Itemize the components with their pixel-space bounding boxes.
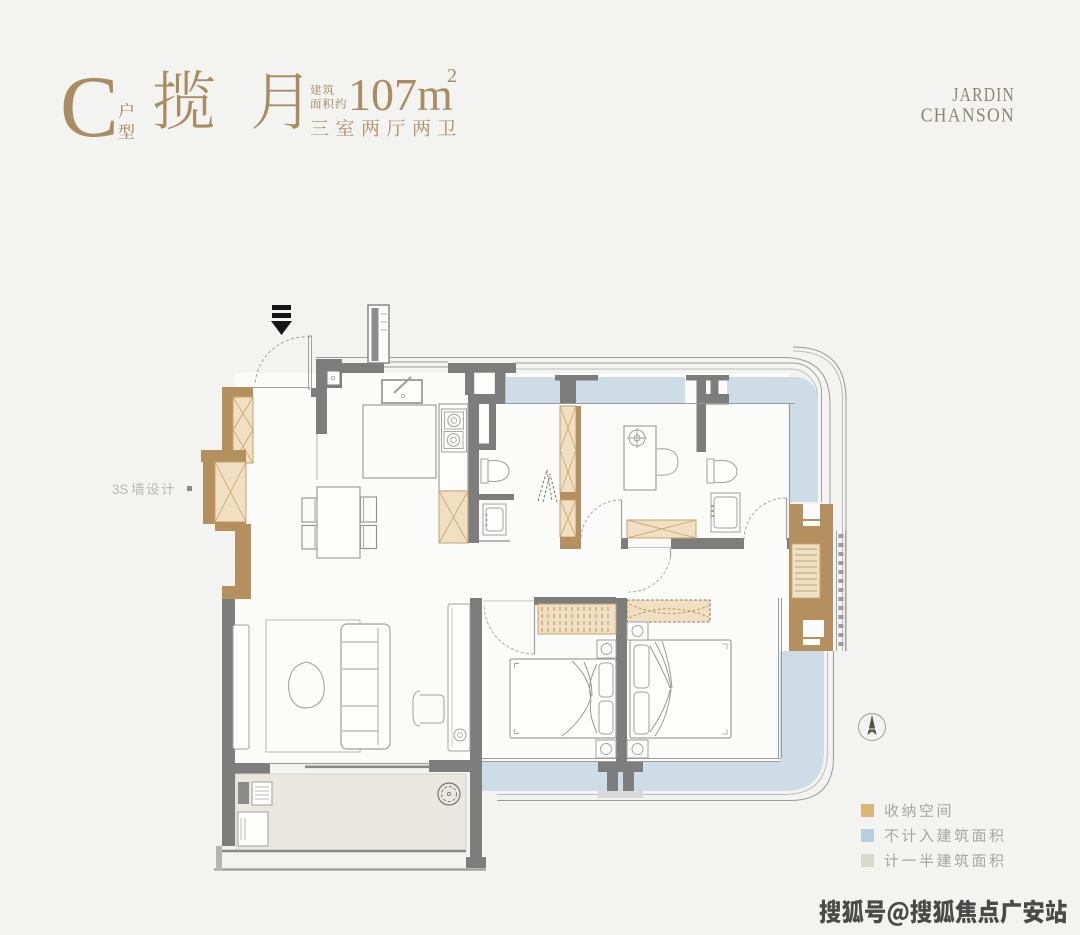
svg-text:107m: 107m: [348, 69, 453, 120]
svg-text:2: 2: [447, 65, 457, 87]
svg-text:3S: 3S: [112, 482, 129, 497]
svg-text:CHANSON: CHANSON: [921, 105, 1015, 127]
svg-text:C: C: [60, 59, 119, 156]
svg-text:JARDIN: JARDIN: [952, 83, 1015, 105]
